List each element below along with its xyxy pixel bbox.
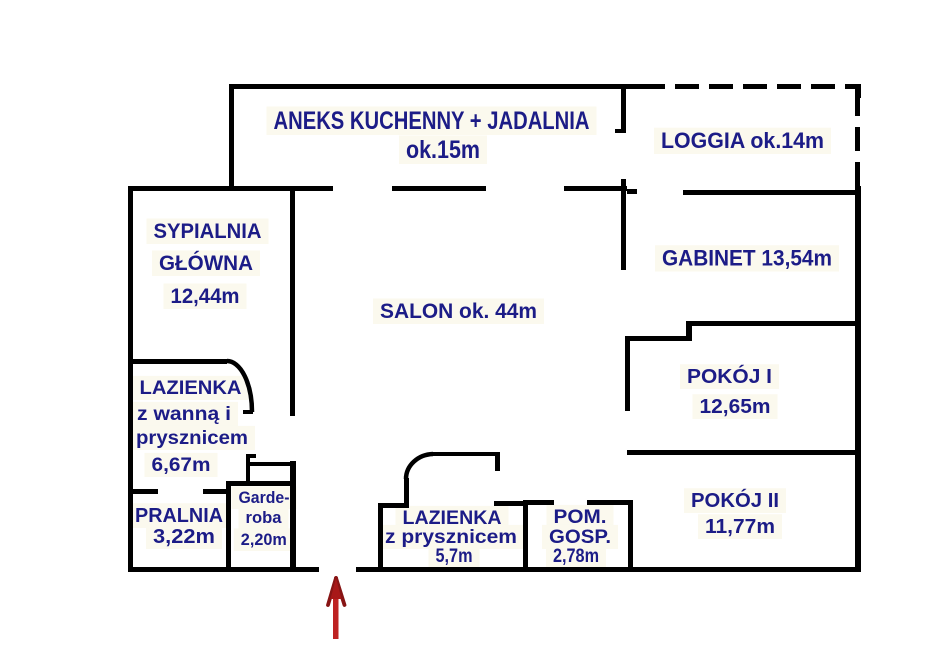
- svg-text:SYPIALNIA: SYPIALNIA: [154, 220, 262, 243]
- svg-text:POKÓJ II: POKÓJ II: [691, 488, 779, 512]
- svg-text:ANEKS KUCHENNY + JADALNIA: ANEKS KUCHENNY + JADALNIA: [274, 107, 590, 135]
- svg-text:PRALNIA: PRALNIA: [135, 505, 223, 527]
- svg-text:6,67m: 6,67m: [152, 455, 211, 476]
- svg-text:GABINET 13,54m: GABINET 13,54m: [662, 246, 832, 271]
- svg-text:prysznicem: prysznicem: [136, 428, 248, 449]
- svg-text:5,7m: 5,7m: [436, 546, 473, 567]
- svg-text:LAZIENKA: LAZIENKA: [403, 508, 502, 529]
- svg-text:3,22m: 3,22m: [153, 526, 215, 548]
- svg-text:LAZIENKA: LAZIENKA: [140, 378, 242, 399]
- svg-text:2,20m: 2,20m: [241, 530, 287, 549]
- svg-text:LOGGIA ok.14m: LOGGIA ok.14m: [661, 128, 824, 153]
- svg-text:roba: roba: [246, 508, 283, 527]
- svg-text:POM.: POM.: [554, 507, 607, 528]
- svg-text:SALON ok. 44m: SALON ok. 44m: [380, 300, 537, 323]
- svg-text:Garde-: Garde-: [239, 488, 290, 507]
- svg-text:POKÓJ I: POKÓJ I: [687, 364, 772, 388]
- svg-text:z wanną i: z wanną i: [137, 404, 231, 425]
- svg-text:12,44m: 12,44m: [171, 285, 240, 308]
- svg-text:GŁÓWNA: GŁÓWNA: [159, 251, 253, 275]
- svg-text:12,65m: 12,65m: [700, 396, 771, 418]
- svg-text:2,78m: 2,78m: [553, 546, 599, 567]
- svg-text:GOSP.: GOSP.: [549, 527, 611, 548]
- svg-text:ok.15m: ok.15m: [406, 136, 480, 164]
- svg-text:z prysznicem: z prysznicem: [385, 527, 517, 548]
- svg-text:11,77m: 11,77m: [705, 516, 775, 538]
